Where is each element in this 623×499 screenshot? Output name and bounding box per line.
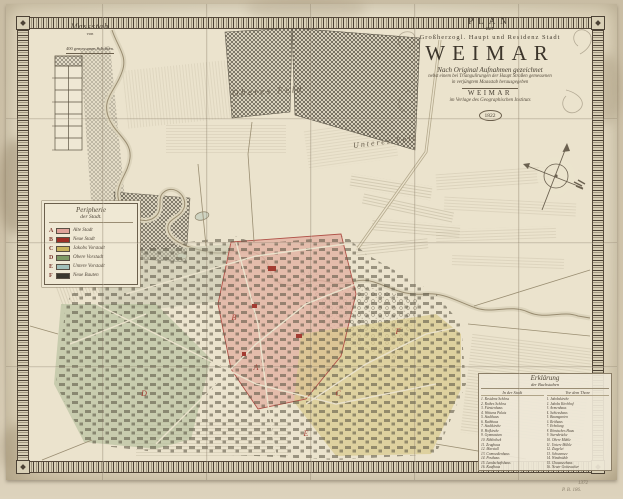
district-letter-b: B	[232, 313, 237, 322]
cartouche-year: 1822	[479, 110, 502, 121]
legend-box: Peripherie der Stadt. A Alte Stadt B Neu…	[44, 203, 138, 285]
legend-label: Untere Vorstadt	[73, 264, 105, 269]
legend-swatch-f	[56, 273, 70, 279]
cartouche-line-der: der	[384, 26, 596, 33]
legend-label: Neue Bauten	[73, 273, 99, 278]
legend-letter: A	[49, 228, 56, 234]
margin-note-shelfmark: P. B. 186.	[562, 488, 581, 493]
explanation-list-left: 1. Residenz Schloss2. Rothes Schloss3. F…	[481, 397, 544, 471]
legend-row: C Jakobs Vorstadt	[49, 244, 133, 253]
legend-row: F Neue Bauten	[49, 271, 133, 280]
map-title: WEIMAR	[384, 42, 596, 66]
district-letter-d: D	[140, 389, 147, 398]
column-header-left: In der Stadt	[481, 390, 544, 396]
list-item: 17. Galgenberg	[547, 470, 610, 471]
legend-label: Obere Vorstadt	[73, 255, 103, 260]
legend-swatch-d	[56, 255, 70, 261]
legend-letter: C	[49, 246, 56, 252]
explanation-list-right: 1. Jakobskirche2. Jakobs Kirchhof3. Arme…	[547, 397, 610, 471]
legend-letter: B	[49, 237, 56, 243]
district-letter-c: C	[335, 389, 341, 398]
legend-subtitle: der Stadt.	[49, 214, 133, 223]
scale-bar: Massstab von 400 gemessenen Schritten.	[46, 23, 134, 54]
legend-row: D Obere Vorstadt	[49, 253, 133, 262]
corner-ornament	[16, 16, 30, 30]
margin-note-number: 1372	[578, 481, 588, 486]
explanation-panel: Erklärung der Buchstaben In der Stadt 1.…	[478, 373, 612, 471]
legend-swatch-b	[56, 237, 70, 243]
map-sheet: Oberes Feld Unteres Feld A B C D E F	[6, 4, 617, 480]
legend-letter: E	[49, 264, 56, 270]
title-cartouche: PLAN der Großherzogl. Haupt und Residenz…	[384, 16, 596, 122]
scale-unit-label: 400 gemessenen Schritten.	[66, 47, 114, 54]
explanation-subtitle: der Buchstaben	[481, 382, 609, 389]
legend-row: E Untere Vorstadt	[49, 262, 133, 271]
cartouche-line-plan: PLAN	[384, 16, 596, 26]
column-header-right: Vor dem Thore	[547, 390, 610, 396]
legend-swatch-c	[56, 246, 70, 252]
legend-label: Alte Stadt	[73, 228, 93, 233]
cartouche-note-2: in verjüngtem Maasstab herausgegeben	[384, 80, 596, 86]
legend-swatch-a	[56, 228, 70, 234]
cartouche-line-residenz: Großherzogl. Haupt und Residenz Stadt	[384, 34, 596, 41]
legend-row: B Neue Stadt	[49, 235, 133, 244]
forest-block-west	[225, 28, 292, 118]
cartouche-place: WEIMAR	[384, 90, 596, 98]
photo-backdrop: Oberes Feld Unteres Feld A B C D E F	[0, 0, 623, 499]
cartouche-subtitle: Nach Original Aufnahmen gezeichnet	[384, 67, 596, 75]
legend-label: Jakobs Vorstadt	[73, 246, 105, 251]
corner-ornament	[16, 460, 30, 474]
scale-ladder	[52, 56, 82, 150]
explanation-title: Erklärung	[481, 375, 609, 382]
scale-von: von	[46, 32, 134, 37]
legend-swatch-e	[56, 264, 70, 270]
legend-title: Peripherie	[49, 207, 133, 214]
district-letter-e: E	[303, 429, 309, 438]
legend-label: Neue Stadt	[73, 237, 95, 242]
list-item: 17. Hospital	[481, 470, 544, 471]
district-letter-f: F	[395, 327, 401, 336]
legend-letter: D	[49, 255, 56, 261]
district-letter-a: A	[253, 363, 259, 372]
legend-letter: F	[49, 273, 56, 279]
legend-row: A Alte Stadt	[49, 226, 133, 235]
border-left	[17, 28, 29, 461]
